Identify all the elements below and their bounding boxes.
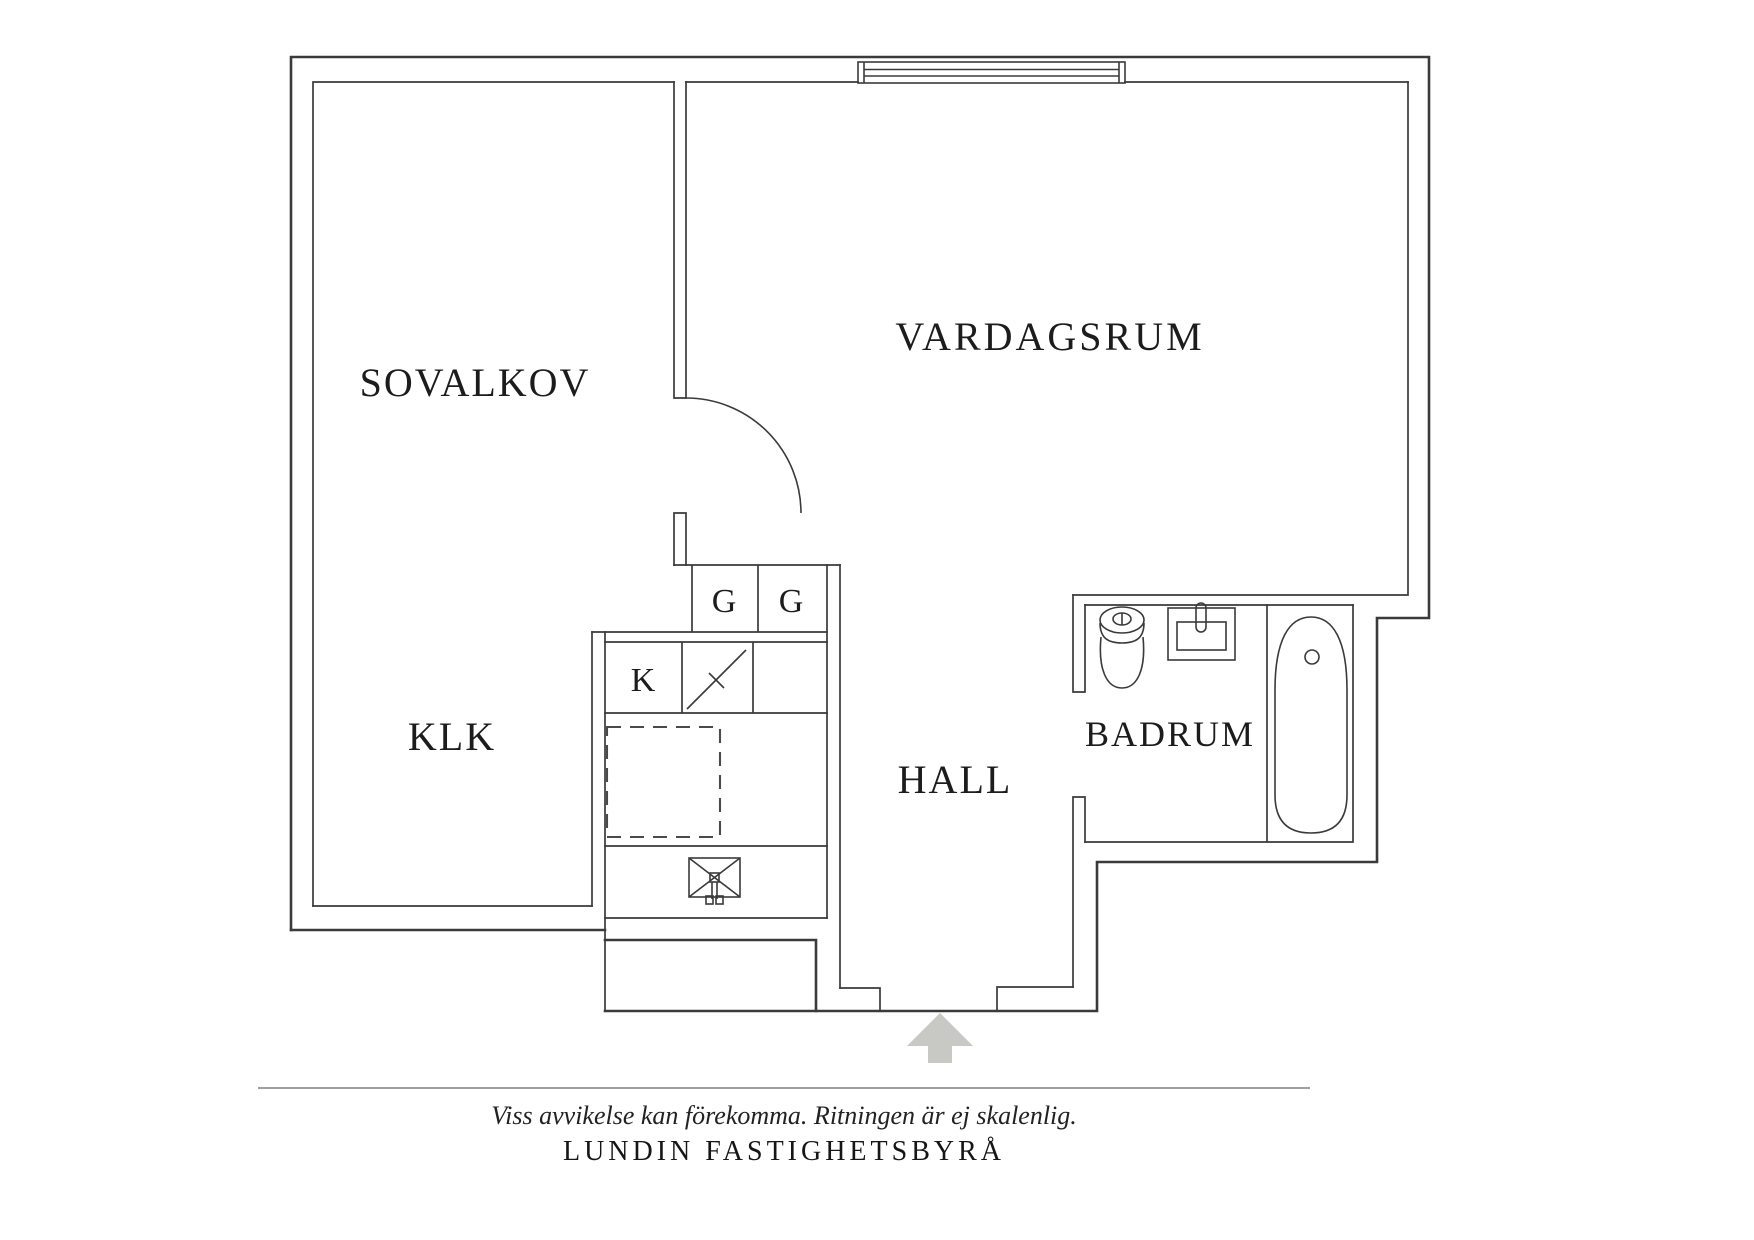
outer-walls xyxy=(291,57,1429,1011)
outer-wall-boundary xyxy=(291,57,1429,1011)
window-frame xyxy=(858,62,1125,83)
wardrobe-label-right: G xyxy=(779,583,804,620)
window xyxy=(858,62,1125,83)
room-label-badrum: BADRUM xyxy=(1085,714,1255,754)
fan-hatch-symbol xyxy=(689,858,740,904)
badrum-door-stub-lower xyxy=(1073,797,1085,987)
footer-disclaimer: Viss avvikelse kan förekomma. Ritningen … xyxy=(491,1101,1077,1130)
divider-wall-lower-stub xyxy=(674,513,686,565)
sovalkov-inner-wall xyxy=(313,82,674,906)
kitchen-label-k: K xyxy=(631,662,656,699)
room-label-hall: HALL xyxy=(898,757,1013,802)
floor-plan-drawing: SOVALKOV VARDAGSRUM KLK HALL BADRUM G G … xyxy=(0,0,1754,1240)
footer-agency-name: LUNDIN FASTIGHETSBYRÅ xyxy=(563,1136,1005,1167)
window-panes xyxy=(864,62,1119,83)
stove-symbol xyxy=(687,650,746,709)
toilet-icon xyxy=(1100,607,1144,688)
room-label-vardagsrum: VARDAGSRUM xyxy=(895,314,1204,359)
badrum-door-stub-upper xyxy=(1073,595,1085,692)
divider-wall-upper-stub xyxy=(674,82,686,398)
hall-west-wall xyxy=(827,565,840,988)
inner-walls xyxy=(313,82,1408,1011)
room-label-klk: KLK xyxy=(408,714,496,759)
floor-plan-page: SOVALKOV VARDAGSRUM KLK HALL BADRUM G G … xyxy=(0,0,1754,1240)
entrance-jamb-walls xyxy=(840,987,1073,1011)
entrance-arrow-icon xyxy=(907,1013,973,1063)
door-swing-arc xyxy=(686,398,801,513)
kitchen-west-wall xyxy=(592,632,605,1011)
bathtub-icon xyxy=(1275,617,1347,833)
room-label-sovalkov: SOVALKOV xyxy=(360,360,591,405)
shaft-dashed-box xyxy=(607,727,720,837)
wardrobe-label-left: G xyxy=(712,583,737,620)
entry-recess-outer-wall xyxy=(605,940,816,1011)
sink-icon xyxy=(1168,603,1235,660)
